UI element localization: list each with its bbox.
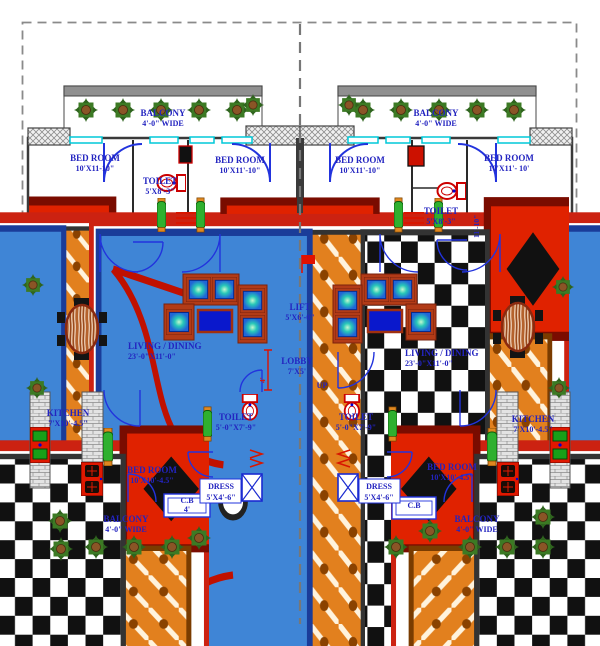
room-label-bed-bottom-left: BED ROOM10'X10'-4.5" (127, 465, 177, 486)
room-label-cb-left: C.B4' (180, 496, 193, 514)
room-label-cb-right: C.B (407, 501, 420, 512)
coffee-table-icon (198, 310, 232, 332)
room-label-toilet-top-left: TOILET5'X8'-3" (143, 176, 177, 197)
room-label-bed-top-left: BED ROOM10'X11-10" (70, 153, 120, 174)
room-label-balcony-top-left: BALCONY4'-0" WIDE (140, 108, 185, 129)
room-label-bed-center-right: BED ROOM10'X11'-10" (335, 155, 385, 176)
room-label-toilet-top-right: TOILET5'X8'-3" (424, 206, 458, 227)
room-label-lift: LIFT5'X6'-0" (285, 302, 314, 323)
room-label-bed-bottom-right: BED ROOM10'X10'-4.5" (427, 462, 477, 483)
room-label-toilet-bottom-right: TOILET5'-0"X7'-9" (336, 412, 376, 433)
coffee-table-icon (368, 310, 402, 332)
room-label-toilet-bottom-left: TOILET5'-0"X7'-9" (216, 412, 256, 433)
floor-plan-drawing (0, 0, 600, 646)
dimension-stair-width: 4' (258, 377, 269, 383)
door-shutter-icon (103, 428, 113, 466)
room-label-balcony-bottom-left: BALCONY4'-0" WIDE (103, 514, 148, 535)
label-up: UP (317, 381, 328, 392)
dimension-bedroom-side: 11'-10" (472, 215, 483, 238)
room-label-living-right: LIVING / DINING23'-0"X11'-0" (405, 348, 479, 369)
room-label-lobby: LOBBY7'X5' (281, 356, 313, 377)
geyser-icon (179, 146, 192, 163)
stove-icon (81, 462, 103, 496)
sink-icon (30, 427, 50, 463)
stove-icon (497, 462, 519, 496)
room-label-balcony-top-right: BALCONY4'-0" WIDE (413, 108, 458, 129)
room-label-bed-top-right: BED ROOM10'X11'- 10' (484, 153, 534, 174)
geyser-icon (408, 146, 424, 166)
room-label-dress-left: DRESS5'X4'-6" (206, 482, 235, 503)
room-label-bed-center-left: BED ROOM10'X11'-10" (215, 155, 265, 176)
room-label-kitchen-right: KITCHEN7'X10'-4.5" (512, 414, 555, 435)
room-label-balcony-bottom-right: BALCONY4'-0" WIDE (454, 514, 499, 535)
room-label-kitchen-left: KITCHEN7'X10'-4.5" (47, 408, 90, 429)
room-label-dress-right: DRESS5'X4'-6" (364, 482, 393, 503)
floor-plan-canvas: BALCONY4'-0" WIDE BALCONY4'-0" WIDE BED … (0, 0, 600, 646)
room-label-living-left: LIVING / DINING23'-0"X11'-0" (128, 341, 202, 362)
door-shutter-icon (487, 428, 497, 466)
